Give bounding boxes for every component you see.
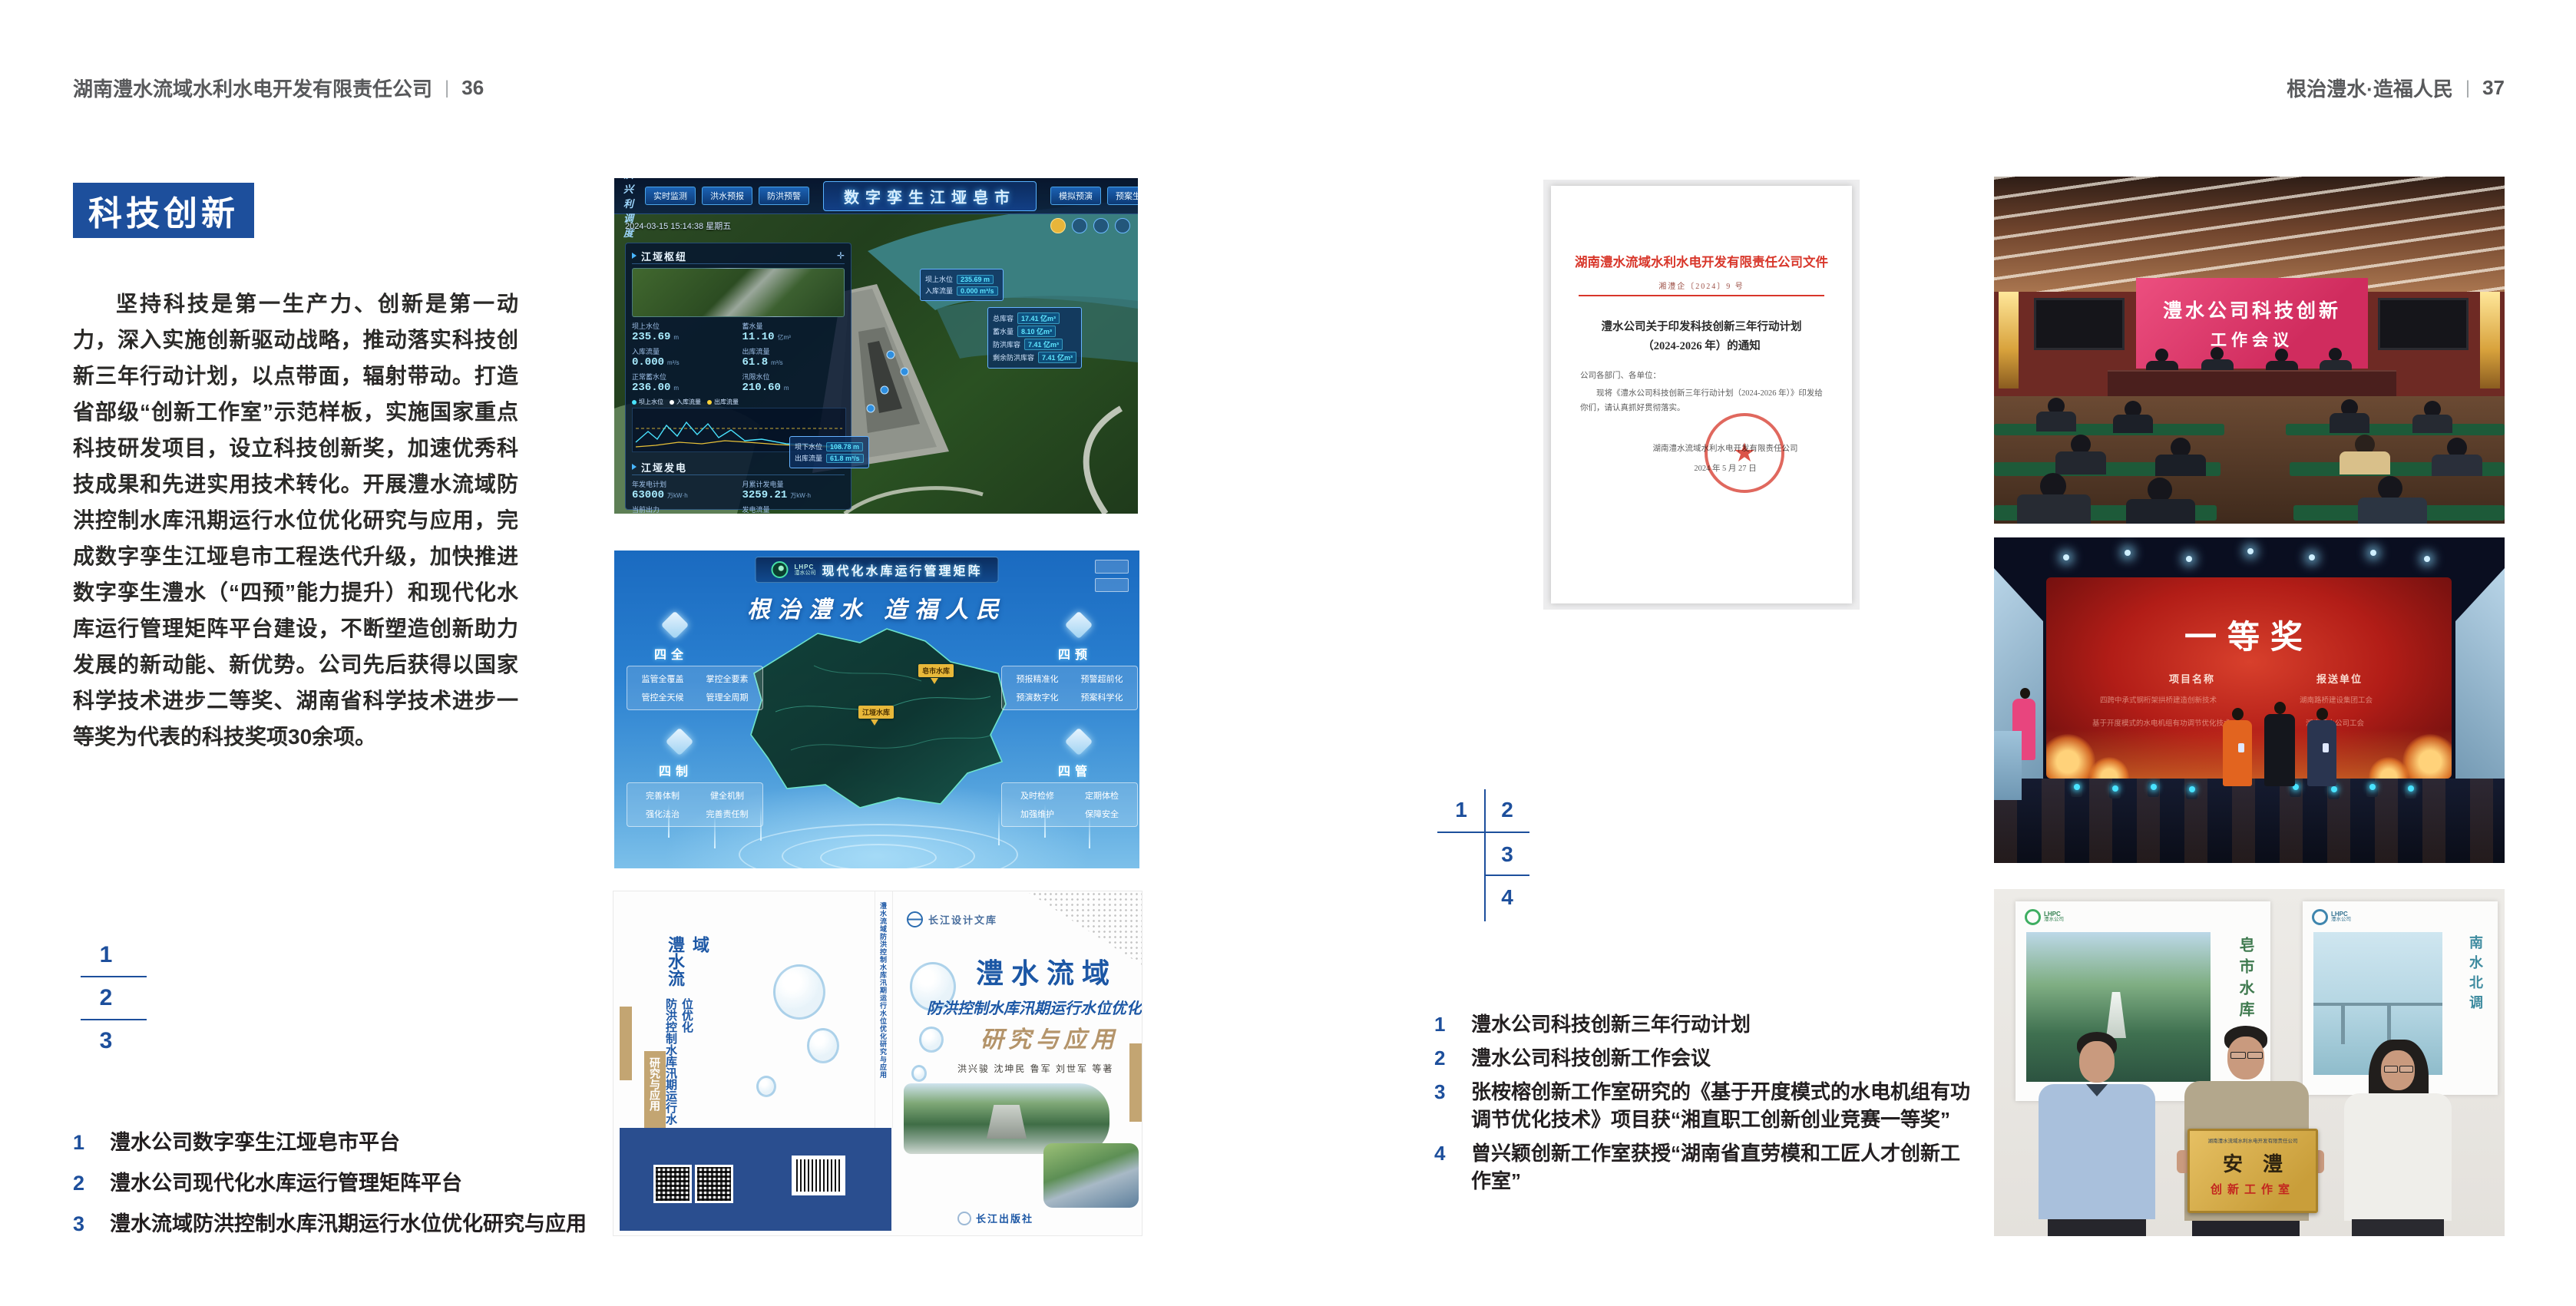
water-drop-decor	[773, 964, 825, 1020]
front-title-sub: 防洪控制水库汛期运行水位优化	[927, 996, 1142, 1018]
caption-number: 2	[73, 1171, 94, 1195]
podium	[1994, 731, 2022, 800]
back-cover-title: 澧水流域 防洪控制水库汛期运行水位优化	[663, 936, 712, 1128]
trophy	[2238, 743, 2244, 752]
tab-realtime-monitor: 实时监测	[645, 187, 696, 205]
dais-table	[2108, 370, 2396, 398]
spine-title: 澧水流域防洪控制水库汛期运行水位优化研究与应用	[878, 902, 888, 1117]
front-title-tail: 研究与应用	[980, 1020, 1119, 1054]
gear-icon	[1065, 728, 1093, 756]
water-drop-decor	[919, 1027, 944, 1053]
water-drop-decor	[756, 1076, 776, 1097]
glasses-icon	[2384, 1066, 2398, 1073]
lhpc-logo: LHPC澧水公司	[2312, 909, 2351, 925]
matrix-title: 现代化水库运行管理矩阵	[822, 560, 982, 579]
tab-plan-generation: 预案生成	[1107, 187, 1138, 205]
legend-item: 出库流量	[707, 398, 739, 406]
winner-orange-jacket	[2223, 720, 2252, 786]
figure-official-document: 湖南澧水流域水利水电开发有限责任公司文件 湘澧企〔2024〕9 号 澧水公司关于…	[1543, 180, 1860, 610]
figure-index-3: 3	[1492, 841, 1523, 868]
document-number: 湘澧企〔2024〕9 号	[1551, 279, 1852, 291]
lhpc-logo: LHPC澧水公司	[2025, 909, 2064, 925]
polo-collar	[2086, 1084, 2108, 1096]
red-rule	[1579, 295, 1824, 296]
body-text: 现将《澧水公司科技创新三年行动计划（2024-2026 年）》印发给你们，请认真…	[1580, 386, 1823, 415]
qr-code	[653, 1165, 692, 1203]
caption-text: 澧水公司数字孪生江垭皂市平台	[110, 1130, 400, 1155]
ripple-ring	[820, 844, 937, 868]
figure-plaque-photo: LHPC澧水公司 皂市水库 LHPC澧水公司 南水北调 湖南澧水流域	[1994, 889, 2505, 1236]
woman-trousers	[2352, 1219, 2444, 1236]
triangle-icon	[632, 253, 637, 259]
panel-header: 江垭枢纽 ✛	[632, 248, 845, 264]
caption-item: 2 澧水公司现代化水库运行管理矩阵平台	[73, 1171, 587, 1195]
presenter-head	[2274, 702, 2286, 714]
legend-item: 坝上水位	[632, 398, 663, 406]
section-title-badge: 科技创新	[73, 183, 254, 238]
figure-digital-twin-dashboard: 防洪兴利调度 实时监测 洪水预报 防洪预警 数字孪生江垭皂市 模拟预演 预案生成…	[614, 178, 1138, 514]
glasses-icon	[2230, 1052, 2246, 1059]
ceiling-light-strips	[1994, 177, 2505, 292]
caption-number: 3	[1434, 1078, 1456, 1106]
globe-icon	[907, 911, 923, 927]
innovation-studio-plaque: 湖南澧水流域水利水电开发有限责任公司 安澧 创新工作室	[2187, 1129, 2318, 1213]
index-divider	[1484, 875, 1529, 876]
glasses-icon	[2247, 1052, 2263, 1059]
stat-cell: 发电流量0.00m³/s	[742, 504, 845, 514]
figure-index-4: 4	[1492, 884, 1523, 911]
stat-cell: 年发电计划63000万kW·h	[632, 479, 735, 501]
map-pin-icon	[871, 719, 878, 726]
matrix-title-banner: LHPC 澧水公司 现代化水库运行管理矩阵	[755, 557, 998, 583]
figure-index-right: 1 2 3 4	[1432, 783, 1539, 929]
group-name: 四预	[1058, 644, 1092, 663]
lhpc-logo-icon	[2025, 909, 2041, 925]
figure-management-matrix: LHPC 澧水公司 现代化水库运行管理矩阵 根治澧水 造福人民 四全 监管全覆盖…	[614, 551, 1139, 868]
screen-title-line1: 澧水公司科技创新	[2163, 296, 2341, 323]
dashboard-top-bar: 防洪兴利调度 实时监测 洪水预报 防洪预警 数字孪生江垭皂市 模拟预演 预案生成…	[614, 178, 1138, 214]
group-name: 四全	[654, 644, 688, 663]
caption-item: 3 澧水流域防洪控制水库汛期运行水位优化研究与应用	[73, 1212, 587, 1236]
woman-white-tee	[2344, 1093, 2452, 1221]
header-divider: |	[445, 78, 449, 99]
user-icon	[1115, 218, 1130, 233]
building-icon	[666, 728, 694, 756]
index-divider	[81, 976, 147, 977]
header-divider: |	[2465, 78, 2470, 99]
trophy	[2323, 743, 2329, 752]
company-name: 湖南澧水流域水利水电开发有限责任公司	[73, 74, 432, 102]
attendee-denim	[2358, 498, 2427, 524]
power-stats-grid: 年发电计划63000万kW·h 月累计发电量3259.21万kW·h 当前出力0…	[632, 479, 845, 514]
dashboard-toolbar-icons	[1050, 218, 1130, 233]
power-panel-title: 江垭发电	[641, 460, 687, 474]
alert-icon	[1050, 218, 1066, 233]
triangle-icon	[632, 464, 637, 470]
wall-tv	[2378, 298, 2469, 350]
caption-text: 澧水流域防洪控制水库汛期运行水位优化研究与应用	[110, 1212, 587, 1236]
series-badge: 长江设计文库	[907, 911, 997, 927]
plaque-name: 安澧	[2203, 1149, 2303, 1177]
captions-right: 1 澧水公司科技创新三年行动计划 2 澧水公司科技创新工作会议 3 张桉榕创新工…	[1434, 1010, 1987, 1201]
stat-cell: 当前出力0.00MW	[632, 504, 735, 514]
figure-index-2: 2	[1492, 797, 1523, 823]
stat-cell: 正常蓄水位236.00m	[632, 372, 735, 394]
figure-index-left: 1 2 3	[77, 941, 161, 1071]
book-spine: 澧水流域防洪控制水库汛期运行水位优化研究与应用	[875, 891, 893, 1128]
caption-text: 澧水公司科技创新三年行动计划	[1471, 1010, 1751, 1038]
publisher-icon	[957, 1212, 971, 1225]
award-row-project: 四跨中承式钢桁架拱桥建造创新技术	[2100, 694, 2217, 705]
panelist-silhouette	[2275, 349, 2288, 362]
hub-stats-grid: 坝上水位235.69m 蓄水量11.10亿m³ 入库流量0.000m³/s 出库…	[632, 321, 845, 394]
stat-cell: 出库流量61.8m³/s	[742, 346, 845, 369]
award-grade: 一等奖	[2046, 611, 2452, 658]
body-paragraph: 坚持科技是第一生产力、创新是第一动力，深入实施创新驱动战略，推动落实科技创新三年…	[73, 286, 518, 755]
salutation: 公司各部门、各单位：	[1580, 369, 1823, 383]
cube-icon	[661, 611, 689, 640]
qr-code	[695, 1165, 733, 1203]
figure-meeting-photo: 澧水公司科技创新 工作会议	[1994, 177, 2505, 524]
caption-item: 2 澧水公司科技创新工作会议	[1434, 1044, 1987, 1072]
screen-control-chip	[1095, 578, 1129, 592]
stat-cell: 入库流量0.000m³/s	[632, 346, 735, 369]
plaque-org: 湖南澧水流域水利水电开发有限责任公司	[2208, 1136, 2298, 1144]
expand-icon: ✛	[837, 250, 845, 261]
figure-index-3: 3	[91, 1028, 121, 1054]
waterfall-dam	[2106, 992, 2126, 1038]
group-name: 四制	[659, 761, 693, 779]
group-name: 四管	[1058, 761, 1092, 779]
hub-panel-title: 江垭枢纽	[641, 249, 687, 263]
bridge-pier	[2341, 1006, 2345, 1044]
legend-item: 入库流量	[670, 398, 701, 406]
screen-control-chip	[1095, 560, 1129, 574]
tan-edge-tab	[620, 1007, 632, 1080]
group-panel: 及时检修定期体检 加强维护保障安全	[1001, 782, 1138, 827]
group-panel: 预报精准化预警超前化 预演数字化预案科学化	[1001, 666, 1138, 710]
map-label-jiangya: 江垭水库	[858, 706, 894, 719]
index-divider	[1437, 832, 1529, 833]
tan-edge-tab	[1129, 1043, 1142, 1122]
map-label-zaoshi: 皂市水库	[918, 664, 954, 677]
panelist-silhouette	[2155, 349, 2168, 362]
page-header-right: 根治澧水·造福人民 | 37	[2287, 74, 2505, 102]
winner-navy-jacket	[2307, 720, 2336, 786]
poster-right-title: 南水北调	[2465, 935, 2485, 1073]
host-head	[2020, 688, 2030, 699]
caption-item: 3 张桉榕创新工作室研究的《基于开度模式的水电机组有功调节优化技术》项目获“湘直…	[1434, 1078, 1987, 1133]
caption-text: 澧水公司科技创新工作会议	[1471, 1044, 1711, 1072]
poster-mountain-image	[2026, 932, 2211, 1082]
water-drop-decor	[807, 1028, 839, 1063]
panelist-silhouette	[2329, 348, 2342, 361]
hub-aerial-thumbnail	[632, 268, 845, 317]
caption-text: 澧水公司现代化水库运行管理矩阵平台	[110, 1171, 462, 1195]
page-header-left: 湖南澧水流域水利水电开发有限责任公司 | 36	[73, 74, 484, 102]
figure-award-photo: 一等奖 项目名称 报送单位 四跨中承式钢桁架拱桥建造创新技术 湖南路桥建设集团工…	[1994, 537, 2505, 863]
caption-text: 曾兴颖创新工作室获授“湖南省直劳模和工匠人才创新工作室”	[1471, 1139, 1978, 1195]
stat-cell: 汛限水位210.60m	[742, 372, 845, 394]
group-panel: 监管全覆盖掌控全要素 管控全天候管理全周期	[627, 666, 763, 710]
column-project: 项目名称	[2169, 671, 2215, 686]
map-pin-icon	[931, 678, 938, 684]
document-paper: 湖南澧水流域水利水电开发有限责任公司文件 湘澧企〔2024〕9 号 澧水公司关于…	[1551, 186, 1852, 603]
man-center-trousers	[2192, 1221, 2300, 1236]
winner-head	[2316, 708, 2328, 720]
hub-stats-panel: 江垭枢纽 ✛ 坝上水位235.69m 蓄水量11.10亿m³ 入库流量0.000…	[625, 243, 852, 510]
tab-flood-forecast: 洪水预报	[702, 187, 752, 205]
cube-icon	[1065, 611, 1093, 640]
person-head	[2079, 1041, 2115, 1083]
figure-index-1: 1	[91, 942, 121, 968]
caption-number: 3	[73, 1212, 94, 1236]
company-motto: 根治澧水·造福人民	[2287, 74, 2453, 102]
caption-text: 张桉榕创新工作室研究的《基于开度模式的水电机组有功调节优化技术》项目获“湘直职工…	[1471, 1078, 1978, 1133]
award-row-unit: 湖南路桥建设集团工会	[2300, 694, 2373, 705]
glasses-icon	[2399, 1066, 2413, 1073]
upstream-info-box: 坝上水位235.69 m 入库流量0.000 m³/s	[920, 269, 1004, 301]
chart-legend: 坝上水位 入库流量 出库流量	[632, 398, 845, 406]
caption-number: 1	[1434, 1010, 1456, 1038]
man-blue-polo	[2039, 1084, 2155, 1219]
bridge-pier	[2387, 1006, 2391, 1044]
dam-shape	[987, 1105, 1027, 1139]
panelist-silhouette	[2211, 347, 2224, 360]
light-pillar	[2480, 292, 2500, 388]
barcode	[792, 1156, 845, 1195]
figure-index-1: 1	[1446, 797, 1476, 823]
light-pillar	[1999, 292, 2019, 388]
dashboard-timestamp: 2024-03-15 15:14:38 星期五	[625, 220, 731, 232]
winner-head	[2232, 708, 2244, 720]
tab-flood-warning: 防洪预警	[759, 187, 809, 205]
stat-cell: 蓄水量11.10亿m³	[742, 321, 845, 343]
figure-index-2: 2	[91, 985, 121, 1011]
desk-row	[1994, 424, 2224, 435]
authors: 洪兴骏 沈坤民 鲁军 刘世军 等著	[957, 1062, 1113, 1075]
figure-book-cover: 澧水流域 防洪控制水库汛期运行水位优化 研究与应用 澧水流域防洪控制水库汛期运行…	[613, 891, 1143, 1236]
presenter-dark-suit	[2264, 714, 2295, 786]
star-icon: ★	[1733, 440, 1756, 466]
red-seal: ★	[1705, 413, 1784, 493]
front-title-main: 澧水流域	[976, 951, 1117, 991]
caption-item: 1 澧水公司数字孪生江垭皂市平台	[73, 1130, 587, 1155]
wall-tv	[2034, 298, 2125, 350]
dam-photo-2	[1043, 1143, 1139, 1208]
caption-number: 4	[1434, 1139, 1456, 1167]
group-panel: 完善体制健全机制 强化法治完善责任制	[627, 782, 763, 827]
attendee-yellow-cardigan	[2340, 451, 2390, 474]
plaque-subtitle: 创新工作室	[2211, 1181, 2295, 1197]
lhpc-logo-icon	[771, 561, 788, 578]
caption-number: 1	[73, 1130, 94, 1155]
tab-simulation: 模拟预演	[1050, 187, 1101, 205]
index-divider	[1484, 789, 1486, 921]
locate-icon	[1093, 218, 1109, 233]
caption-item: 1 澧水公司科技创新三年行动计划	[1434, 1010, 1987, 1038]
page-number-36: 36	[461, 76, 484, 100]
matrix-slogan: 根治澧水 造福人民	[747, 590, 1007, 624]
caption-number: 2	[1434, 1044, 1456, 1072]
downstream-info-box: 坝下水位108.78 m 出库流量61.8 m³/s	[789, 436, 869, 468]
captions-left: 1 澧水公司数字孪生江垭皂市平台 2 澧水公司现代化水库运行管理矩阵平台 3 澧…	[73, 1130, 587, 1252]
caption-item: 4 曾兴颖创新工作室获授“湖南省直劳模和工匠人才创新工作室”	[1434, 1139, 1987, 1195]
dashboard-title: 数字孪生江垭皂市	[823, 181, 1037, 211]
lhpc-logo-icon	[2312, 909, 2328, 925]
award-row-project: 基于开度模式的水电机组有功调节优化技术	[2092, 717, 2231, 728]
index-divider	[81, 1019, 147, 1020]
column-unit: 报送单位	[2316, 671, 2363, 686]
water-drop-decor	[911, 1065, 927, 1082]
screen-title-line2: 工作会议	[2211, 328, 2293, 351]
man-left-trousers	[2048, 1219, 2146, 1236]
stat-cell: 坝上水位235.69m	[632, 321, 735, 343]
desk-row	[2286, 424, 2505, 435]
bridge-deck	[2313, 1003, 2442, 1006]
document-title: 澧水公司关于印发科技创新三年行动计划（2024-2026 年）的通知	[1598, 318, 1805, 356]
layers-icon	[1072, 218, 1087, 233]
stat-cell: 月累计发电量3259.21万kW·h	[742, 479, 845, 501]
lhpc-logo-text: LHPC 澧水公司	[794, 564, 815, 576]
storage-info-box: 总库容17.41 亿m³ 蓄水量8.10 亿m³ 防洪库容7.41 亿m³ 剩余…	[987, 307, 1082, 369]
document-header: 湖南澧水流域水利水电开发有限责任公司文件	[1551, 252, 1852, 270]
publisher-logo: 长江出版社	[957, 1211, 1033, 1225]
page-number-37: 37	[2482, 76, 2505, 100]
document-body: 公司各部门、各单位： 现将《澧水公司科技创新三年行动计划（2024-2026 年…	[1580, 369, 1823, 415]
